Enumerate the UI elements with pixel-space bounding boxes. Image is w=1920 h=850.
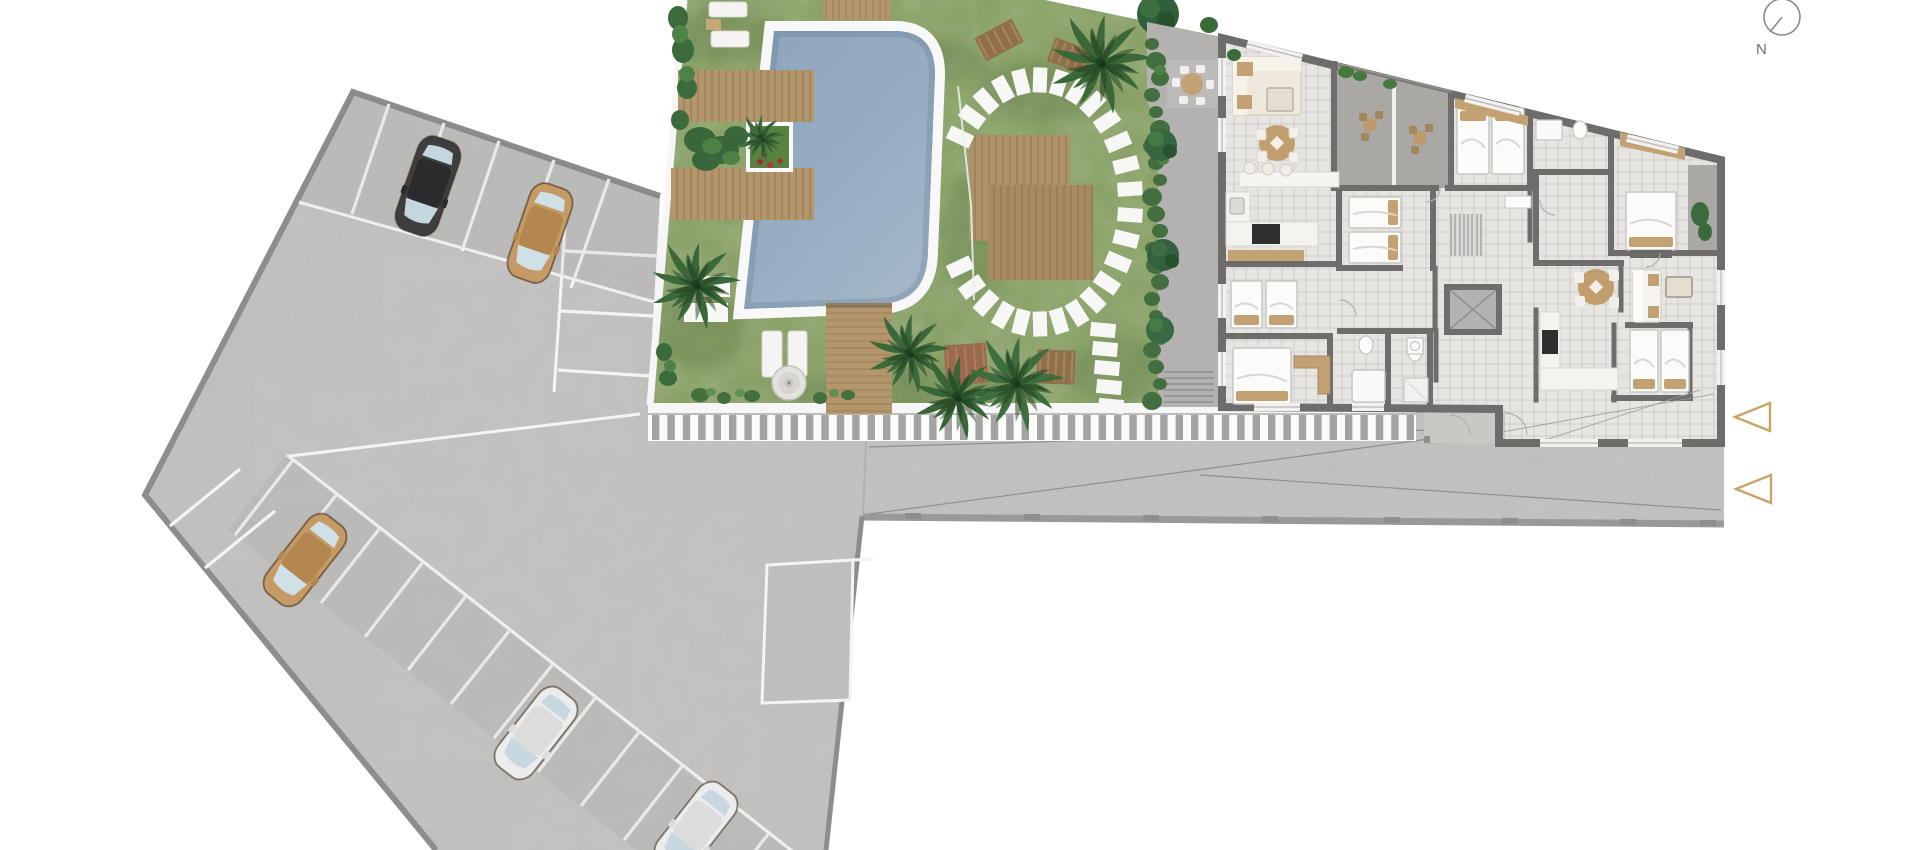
svg-text:N: N xyxy=(1756,41,1767,58)
